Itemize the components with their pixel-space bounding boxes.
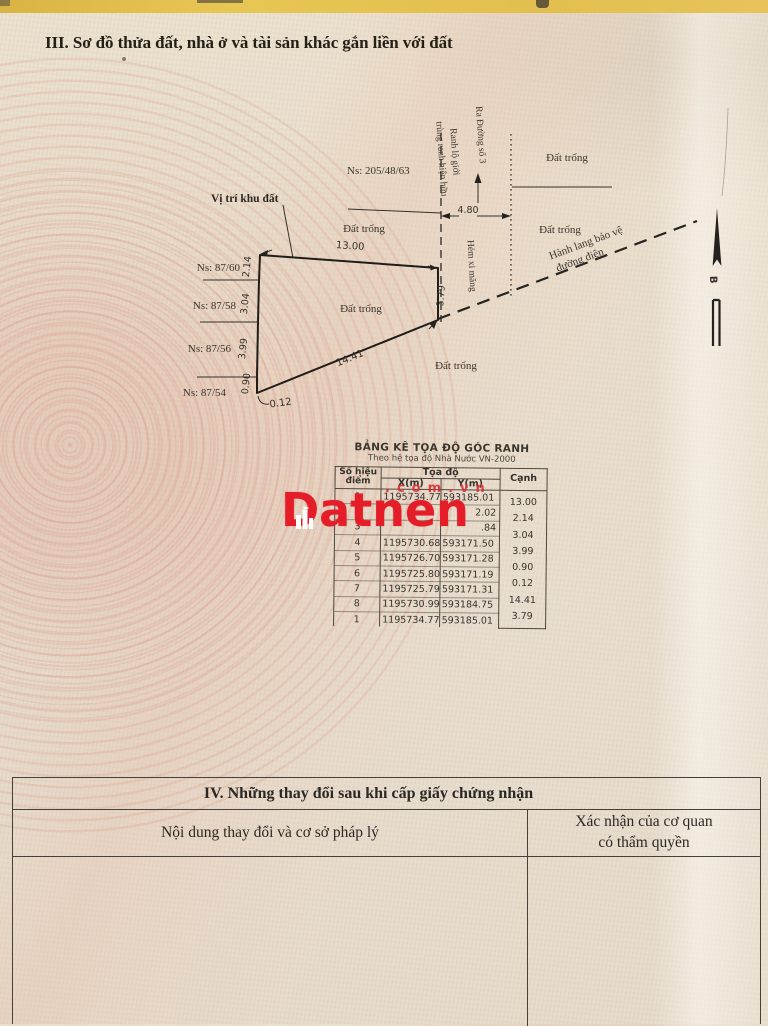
scanned-land-certificate: { "colors": {"watermark_red": "#e41d28",… — [0, 0, 768, 1024]
canh-value: 14.41 — [499, 595, 545, 605]
corner-arrowhead — [430, 265, 437, 271]
label-ns-205: Ns: 205/48/63 — [347, 165, 410, 177]
cadastral-diagram: B Ns: 205/48/63 Vị trí khu đất Đất trống… — [0, 70, 768, 430]
dim-left1: 2.14 — [241, 256, 254, 278]
cell-x: 1195730.99 — [380, 597, 440, 613]
label-hem-xi-mang: Hẻm xi măng — [465, 240, 478, 292]
dim-arrow — [441, 213, 450, 219]
section4-title: IV. Những thay đổi sau khi cấp giấy chứn… — [13, 778, 760, 810]
north-letter: B — [707, 276, 718, 284]
ink-dot — [122, 57, 126, 61]
scan-artifact — [536, 0, 549, 8]
canh-value: 3.79 — [499, 612, 545, 622]
label-dat-trong: Đất trống — [539, 224, 581, 236]
canh-value: 3.04 — [500, 530, 546, 540]
cell-point: 1 — [334, 612, 380, 627]
label-ns-8760: Ns: 87/60 — [197, 262, 241, 274]
dim-left2: 3.04 — [239, 293, 252, 315]
cell-y: 593184.75 — [439, 597, 499, 613]
section4-col-right-header: Xác nhận của cơ quan có thẩm quyền — [527, 810, 760, 856]
cell-x: 1195726.70 — [380, 550, 440, 566]
cell-x: 1195725.80 — [380, 566, 440, 582]
col-header-canh: Cạnh — [500, 468, 547, 490]
label-dat-trong: Đất trống — [546, 152, 588, 164]
section4-col-left-header: Nội dung thay đổi và cơ sở pháp lý — [13, 810, 527, 856]
dim-alley: 4.80 — [457, 205, 478, 216]
cell-x: 1195730.68 — [380, 535, 440, 551]
dim-left3: 3.99 — [237, 338, 250, 360]
section3-title: III. Sơ đồ thửa đất, nhà ở và tài sản kh… — [45, 33, 685, 53]
cell-point: 6 — [334, 565, 380, 581]
cell-x: 1195734.77 — [380, 612, 440, 627]
label-ns-8756: Ns: 87/56 — [188, 343, 232, 355]
dim-left4: 0.90 — [240, 373, 253, 395]
canh-column: 13.00 2.14 3.04 3.99 0.90 0.12 14.41 3.7… — [499, 490, 547, 628]
label-vi-tri-khu-dat: Vị trí khu đất — [211, 192, 279, 205]
label-ns-8758: Ns: 87/58 — [193, 300, 237, 312]
canh-values: 13.00 2.14 3.04 3.99 0.90 0.12 14.41 3.7… — [499, 491, 546, 628]
canh-value: 0.12 — [499, 579, 545, 589]
section4-col-right-line2: có thẩm quyền — [598, 833, 689, 854]
to-street-arrowhead — [475, 173, 482, 183]
label-ranh-lo-gioi: Ranh lộ giới — [447, 128, 460, 176]
section4-col-right-line1: Xác nhận của cơ quan — [575, 812, 712, 833]
north-arrow-tail — [713, 300, 720, 346]
section4-empty-right — [527, 857, 760, 1026]
canh-value: 13.00 — [500, 498, 546, 508]
cell-y: 593171.50 — [440, 536, 500, 552]
cell-y: 593171.19 — [440, 566, 500, 582]
land-plot-polygon — [257, 255, 438, 393]
cell-y: 593171.31 — [439, 582, 499, 598]
section4-table: IV. Những thay đổi sau khi cấp giấy chứn… — [12, 777, 761, 1024]
boundary-line — [348, 209, 441, 213]
dim-top: 13.00 — [336, 240, 365, 253]
watermark-domain: .com.vn — [385, 481, 492, 496]
cell-x: 1195725.79 — [380, 581, 440, 597]
cell-y: 593185.01 — [439, 613, 499, 628]
corner-hook-arrow — [258, 396, 269, 404]
leader-line — [283, 205, 293, 258]
cell-point: 5 — [334, 550, 380, 566]
label-dat-trong: Đất trống — [343, 223, 385, 235]
canh-value: 3.99 — [500, 547, 546, 557]
page-top-yellow-edge — [0, 0, 768, 13]
dim-diagonal: 14.41 — [335, 348, 366, 369]
cell-point: 8 — [334, 596, 380, 612]
cell-point: 7 — [334, 581, 380, 597]
building-icon — [293, 505, 315, 531]
north-arrow-icon — [713, 208, 722, 266]
dim-right: 3.79 — [435, 285, 448, 307]
section4-empty-left — [13, 857, 527, 1026]
cell-y: 593171.28 — [440, 551, 500, 567]
dim-corner: 0.12 — [269, 397, 293, 411]
section4-header-row: Nội dung thay đổi và cơ sở pháp lý Xác n… — [13, 810, 760, 857]
label-ns-8754: Ns: 87/54 — [183, 387, 227, 399]
scan-crease-line — [722, 108, 728, 196]
scan-artifact — [197, 0, 243, 3]
label-ra-duong-so-3: Ra Đường số 3 — [473, 106, 488, 164]
label-dat-trong: Đất trống — [340, 303, 382, 315]
section4-empty-row — [13, 857, 760, 1026]
canh-value: 0.90 — [500, 563, 546, 573]
canh-value: 2.14 — [500, 514, 546, 524]
dim-arrow — [502, 213, 511, 219]
label-dat-trong: Đất trống — [435, 360, 477, 372]
label-trung-ranh: trùng ranh hiện hữu — [433, 121, 448, 197]
scan-artifact — [0, 0, 10, 6]
